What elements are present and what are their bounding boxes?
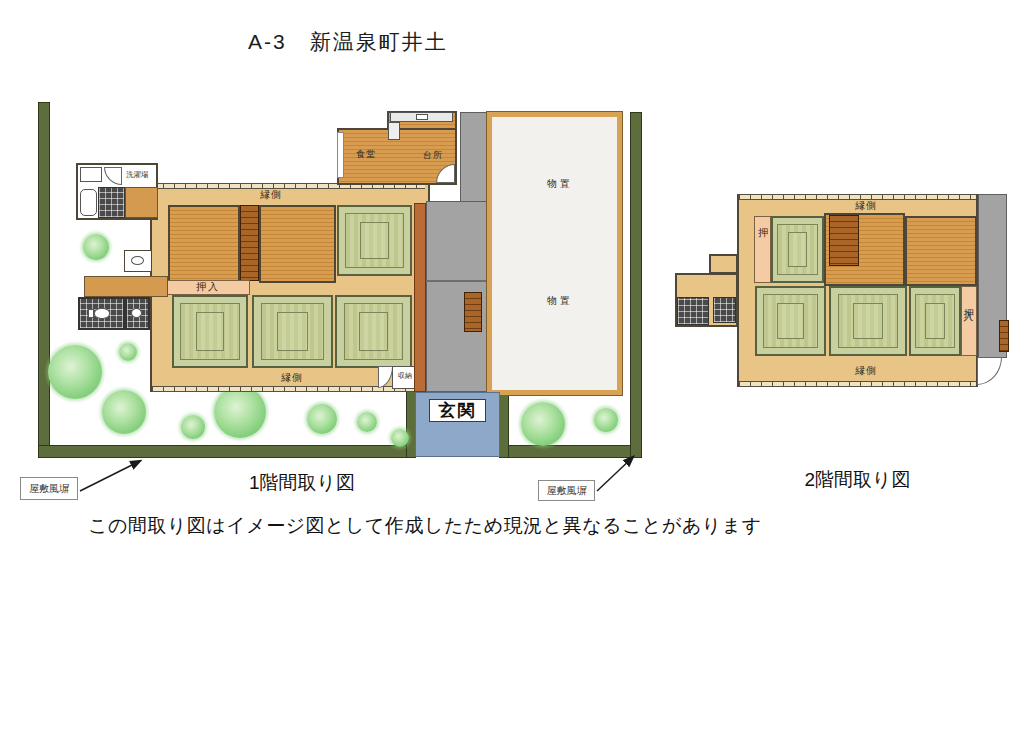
- floor2-porch-step: [709, 254, 738, 274]
- fence-bottom-left-wall: [38, 445, 410, 458]
- dining-window-strip: [337, 132, 344, 178]
- fence-left-wall: [38, 102, 50, 458]
- kitchen-label: 台所: [423, 151, 443, 161]
- hall-room-small: [125, 187, 158, 218]
- tree: [119, 343, 137, 361]
- floor2-door-arc: [977, 357, 1002, 385]
- floor2-lattice-window-2: [713, 297, 736, 323]
- floor2-caption: 2階間取り図: [775, 467, 940, 493]
- floor2-wood-right: [905, 216, 977, 286]
- room-tatami-a: [172, 295, 248, 368]
- tree: [48, 345, 102, 399]
- floor2-tatami-b: [829, 286, 907, 356]
- floor-plan-page: A-3 新温泉町井土 押入 縁側 縁側 収納 洗濯場: [0, 0, 1024, 752]
- tree: [357, 412, 377, 432]
- floor2-tatami-c: [909, 286, 961, 356]
- tree: [214, 386, 266, 438]
- floor2-lattice-window-1: [677, 297, 709, 325]
- floor2-veranda-top-label: 縁側: [855, 200, 877, 211]
- tree: [521, 402, 565, 446]
- storage-lower-label: 物置: [547, 295, 573, 306]
- corridor-west: [84, 276, 168, 297]
- closet-oshiire-1f-label: 押入: [196, 281, 220, 292]
- storage-upper-label: 物置: [547, 178, 573, 189]
- entrance-label: 玄関: [439, 399, 477, 422]
- tree: [181, 415, 205, 439]
- floor2-closet-left-label: 押: [758, 227, 768, 238]
- fence-bottom-right-wall: [508, 445, 642, 458]
- washing-machine-icon: [80, 167, 102, 182]
- toilet-icon: [94, 308, 110, 319]
- room-wood-1: [168, 205, 240, 283]
- corridor-gray-upper: [460, 112, 487, 202]
- closet-shunou-label: 収納: [398, 372, 412, 380]
- dining-label: 食堂: [356, 150, 376, 160]
- fence-callout-left: 屋敷風塀: [20, 477, 78, 500]
- tree: [307, 404, 337, 434]
- bathtub-icon: [80, 189, 97, 216]
- tree: [391, 429, 409, 447]
- washbasin-icon: [131, 256, 144, 265]
- floor2-tatami-a: [755, 286, 826, 356]
- tree: [102, 390, 146, 434]
- tree: [83, 234, 109, 260]
- floor2-closet-right-label: 押入: [963, 300, 974, 306]
- floor2-tatami-top: [771, 216, 824, 283]
- kitchen-sink-icon: [416, 114, 428, 120]
- kitchen-stove-icon: [388, 122, 400, 140]
- laundry-label: 洗濯場: [126, 171, 149, 179]
- veranda-bottom-label: 縁側: [281, 372, 303, 383]
- corridor-divider: [426, 280, 487, 282]
- floor2-veranda-bottom-label: 縁側: [855, 365, 877, 376]
- floor2-bottom-windows: [739, 381, 976, 387]
- tree: [594, 408, 618, 432]
- floor2-staircase: [829, 215, 859, 266]
- entrance-label-box: 玄関: [429, 399, 486, 422]
- disclaimer-text: この間取り図はイメージ図として作成したため現況と異なることがあります: [88, 516, 762, 537]
- earthen-wall-strip: [414, 203, 426, 392]
- bath-tile-floor: [98, 187, 125, 218]
- storage-building: [487, 112, 622, 395]
- staircase-corridor: [464, 292, 482, 332]
- floor2-ladder: [999, 320, 1009, 352]
- room-tatami-b: [252, 295, 333, 368]
- fence-right-wall: [630, 112, 642, 458]
- room-tatami-c: [335, 295, 412, 368]
- staircase-1f: [240, 205, 259, 281]
- fence-callout-right: 屋敷風塀: [538, 480, 595, 501]
- room-wood-2: [259, 205, 336, 283]
- fence-callout-left-label: 屋敷風塀: [29, 482, 69, 496]
- basin-bowl-icon: [131, 308, 142, 318]
- page-title: A-3 新温泉町井土: [248, 30, 448, 53]
- veranda-top-label: 縁側: [260, 189, 282, 200]
- room-tatami-topright: [337, 205, 412, 276]
- fence-callout-right-label: 屋敷風塀: [547, 484, 587, 498]
- fence-entry-right: [499, 390, 509, 458]
- toilet-tank-icon: [88, 309, 94, 318]
- veranda-bottom-windows: [152, 386, 425, 392]
- floor2-closet-right: [961, 286, 977, 356]
- floor1-caption: 1階間取り図: [222, 470, 382, 496]
